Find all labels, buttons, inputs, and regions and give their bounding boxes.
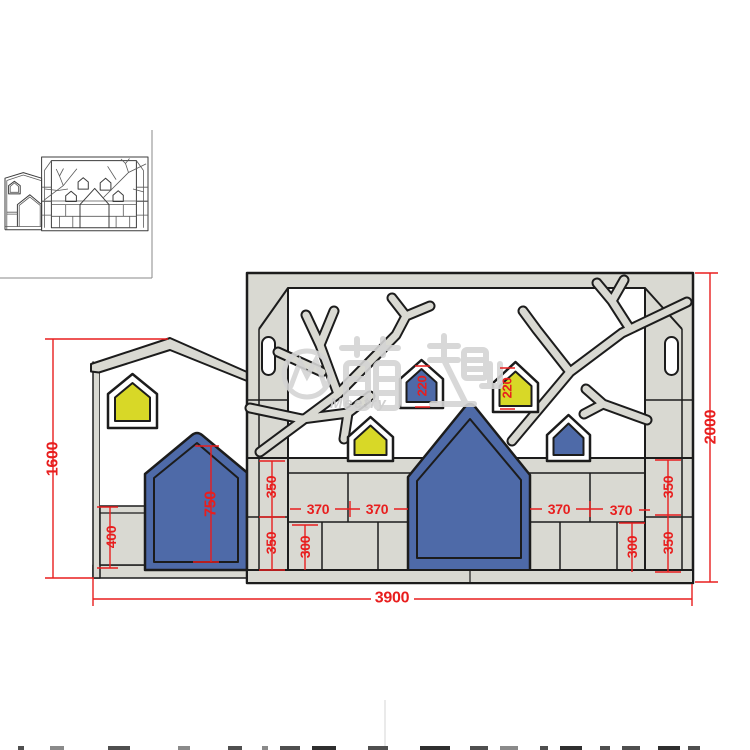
- thumbnail-drawing: [5, 157, 148, 231]
- elevation-drawing: Meetry 1600 2000 3900 400 750 220 220 35…: [0, 0, 750, 750]
- sheet-border-line: [0, 130, 152, 278]
- dim-300-right: 300: [624, 535, 640, 558]
- watermark-latin: Meetry: [330, 395, 387, 412]
- dim-350-l1: 350: [263, 475, 279, 498]
- dim-1600: 1600: [45, 441, 62, 476]
- drawing-canvas: Meetry 1600 2000 3900 400 750 220 220 35…: [0, 0, 750, 750]
- dim-300-left: 300: [297, 535, 313, 558]
- dim-350-l2: 350: [263, 531, 279, 554]
- dim-350-r2: 350: [660, 531, 676, 554]
- sheet-border: [0, 130, 152, 278]
- dim-350-r1: 350: [660, 475, 676, 498]
- bottom-cropped-strip: [18, 700, 700, 750]
- dim-750: 750: [203, 491, 220, 517]
- dim-220-right: 220: [500, 378, 515, 399]
- left-wall: [93, 362, 100, 578]
- dim-400: 400: [103, 525, 119, 548]
- side-slot-right: [665, 337, 678, 375]
- dim-370-r2: 370: [610, 502, 633, 518]
- dim-3900: 3900: [375, 590, 410, 607]
- dim-370-r1: 370: [548, 501, 571, 517]
- dim-220-left: 220: [415, 376, 430, 397]
- side-slot-left: [262, 337, 275, 375]
- dim-370-l1: 370: [307, 501, 330, 517]
- dim-2000: 2000: [703, 409, 720, 444]
- dim-370-l2: 370: [366, 501, 389, 517]
